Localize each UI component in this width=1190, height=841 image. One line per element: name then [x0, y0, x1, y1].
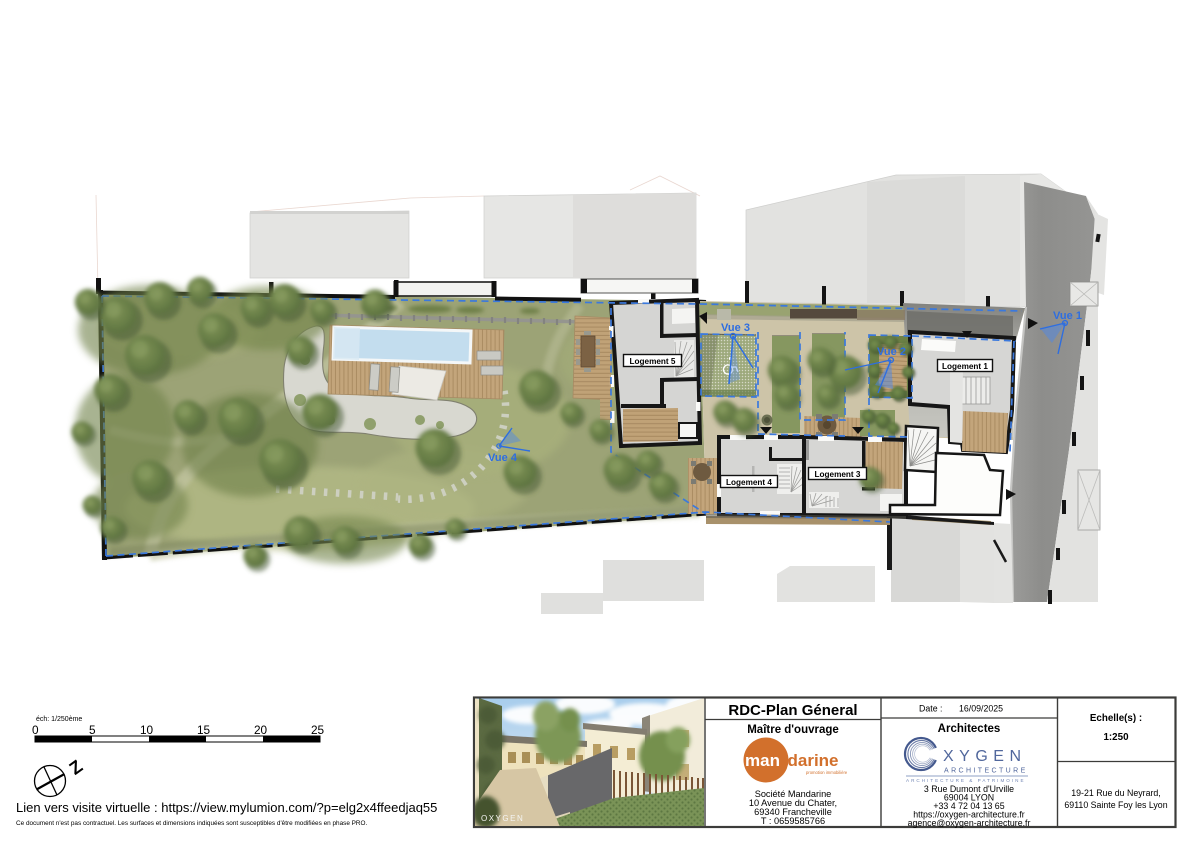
- svg-text:Logement 3: Logement 3: [815, 470, 861, 479]
- svg-text:Architectes: Architectes: [938, 723, 1001, 735]
- svg-text:éch: 1/250ème: éch: 1/250ème: [36, 716, 82, 723]
- svg-text:16/09/2025: 16/09/2025: [959, 704, 1003, 714]
- svg-text:5: 5: [89, 723, 96, 737]
- svg-text:0: 0: [32, 723, 39, 737]
- svg-text:Logement 5: Logement 5: [630, 357, 676, 366]
- svg-text:Lien vers visite virtuelle : h: Lien vers visite virtuelle : https://vie…: [16, 800, 437, 815]
- svg-text:69110 Sainte Foy les Lyon: 69110 Sainte Foy les Lyon: [1064, 800, 1167, 810]
- svg-text:Vue 2: Vue 2: [877, 346, 906, 358]
- svg-text:10: 10: [140, 723, 154, 737]
- svg-text:Vue 3: Vue 3: [721, 322, 750, 334]
- svg-text:Logement 4: Logement 4: [726, 478, 772, 487]
- svg-text:promotion immobilière: promotion immobilière: [806, 770, 848, 775]
- svg-text:19-21 Rue du Neyrard,: 19-21 Rue du Neyrard,: [1071, 788, 1161, 798]
- svg-text:ARCHITECTURE & PATRIMOINE: ARCHITECTURE & PATRIMOINE: [906, 778, 1026, 783]
- svg-text:Vue 4: Vue 4: [488, 452, 518, 464]
- svg-text:Logement 1: Logement 1: [942, 362, 988, 371]
- svg-text:XYGEN: XYGEN: [943, 748, 1027, 765]
- svg-text:OXYGEN: OXYGEN: [481, 814, 524, 823]
- svg-text:Vue 1: Vue 1: [1053, 310, 1082, 322]
- svg-text:RDC-Plan Géneral: RDC-Plan Géneral: [728, 702, 857, 719]
- svg-text:agence@oxygen-architecture.fr: agence@oxygen-architecture.fr: [908, 818, 1031, 828]
- svg-text:20: 20: [254, 723, 268, 737]
- svg-text:T : 0659585766: T : 0659585766: [761, 816, 825, 826]
- svg-text:Ce document n'est pas contract: Ce document n'est pas contractuel. Les s…: [16, 820, 368, 827]
- svg-text:1:250: 1:250: [1103, 732, 1129, 743]
- svg-text:Maître d'ouvrage: Maître d'ouvrage: [747, 724, 839, 736]
- svg-text:Echelle(s) :: Echelle(s) :: [1090, 713, 1142, 724]
- svg-text:Date :: Date :: [919, 704, 942, 714]
- svg-text:darine: darine: [788, 751, 839, 770]
- svg-text:25: 25: [311, 723, 325, 737]
- svg-text:15: 15: [197, 723, 211, 737]
- svg-text:man: man: [745, 751, 780, 770]
- svg-text:ARCHITECTURE: ARCHITECTURE: [944, 768, 1028, 775]
